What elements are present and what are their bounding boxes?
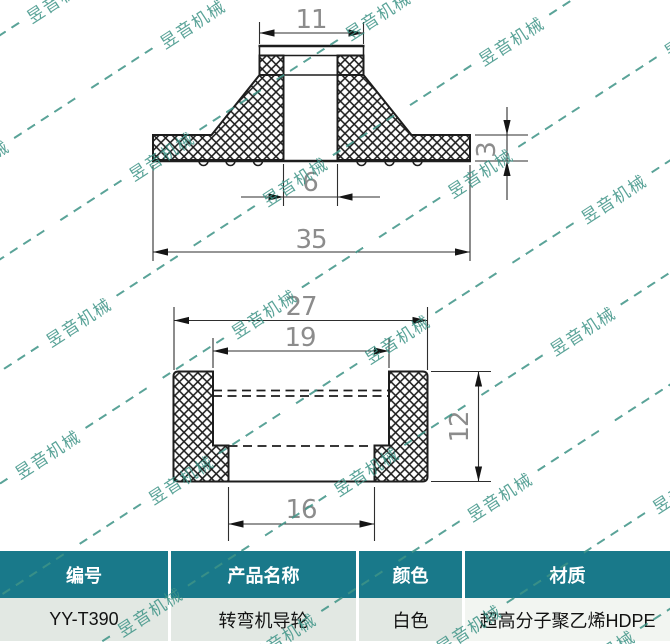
dimension-hub-width: 16 <box>229 487 375 541</box>
dim-flange-thickness-value: 3 <box>472 142 502 158</box>
front-section-drawing: 11 6 35 3 <box>152 5 528 261</box>
rim-hatch-left <box>174 372 229 482</box>
drawings-canvas: 11 6 35 3 <box>0 0 670 551</box>
dim-groove-width-value: 19 <box>284 323 315 353</box>
spec-header-product-name: 产品名称 <box>171 551 356 598</box>
dimension-height: 12 <box>431 372 491 482</box>
spec-header-material: 材质 <box>465 551 670 598</box>
side-section-drawing: 27 19 16 12 <box>174 292 492 541</box>
body-hatch-left <box>153 75 284 160</box>
spec-value-number: YY-T390 <box>0 598 168 641</box>
dimension-bore-width: 6 <box>241 164 380 206</box>
cap-hatch-left <box>260 56 284 76</box>
dim-hub-width-value: 16 <box>285 495 316 525</box>
dimension-groove-width: 19 <box>213 323 389 368</box>
spec-value-color: 白色 <box>359 598 462 641</box>
spec-value-material: 超高分子聚乙烯HDPE <box>465 598 670 641</box>
dim-top-width-value: 11 <box>295 5 326 35</box>
dim-flange-width-value: 35 <box>295 225 326 255</box>
rim-hatch-right <box>375 372 428 482</box>
product-drawing-page: 11 6 35 3 <box>0 0 670 644</box>
spec-header-color: 颜色 <box>359 551 462 598</box>
dim-bore-width-value: 6 <box>302 168 318 198</box>
cap-hatch-right <box>338 56 364 76</box>
cap-side-edges <box>260 46 364 56</box>
spec-header-number: 编号 <box>0 551 168 598</box>
dim-height-value: 12 <box>445 411 475 442</box>
spec-table: 编号 产品名称 颜色 材质 YY-T390 转弯机导轮 白色 超高分子聚乙烯HD… <box>0 551 670 641</box>
spec-value-product-name: 转弯机导轮 <box>171 598 356 641</box>
dimension-top-width: 11 <box>260 5 364 44</box>
dim-outer-width-value: 27 <box>285 292 316 322</box>
hidden-edges <box>213 391 389 447</box>
dimension-flange-thickness: 3 <box>472 107 528 200</box>
body-hatch-right <box>338 75 471 160</box>
